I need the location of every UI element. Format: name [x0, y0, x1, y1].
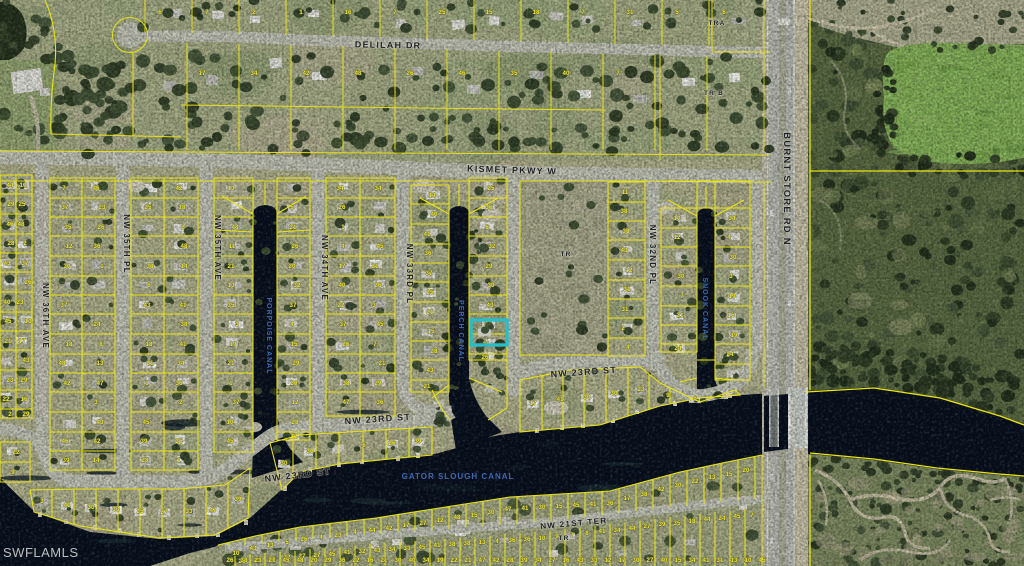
svg-text:16: 16 — [345, 9, 352, 16]
svg-text:19: 19 — [230, 341, 237, 348]
svg-text:19: 19 — [731, 332, 738, 339]
svg-text:GATOR SLOUGH CANAL: GATOR SLOUGH CANAL — [402, 472, 515, 481]
svg-text:29: 29 — [325, 557, 332, 564]
svg-text:1: 1 — [229, 380, 233, 387]
svg-text:10: 10 — [745, 557, 752, 564]
svg-text:29: 29 — [375, 380, 382, 387]
svg-text:48: 48 — [181, 243, 188, 250]
svg-text:21: 21 — [379, 360, 386, 367]
svg-text:34: 34 — [337, 185, 344, 192]
svg-text:32: 32 — [489, 243, 496, 250]
svg-text:27: 27 — [420, 520, 427, 527]
svg-text:47: 47 — [505, 506, 512, 513]
svg-text:35: 35 — [65, 224, 72, 231]
svg-text:46: 46 — [7, 221, 14, 228]
svg-text:TR: TR — [558, 535, 569, 542]
svg-text:13: 13 — [25, 318, 32, 325]
svg-text:42: 42 — [94, 438, 101, 445]
svg-text:30: 30 — [675, 482, 682, 489]
svg-text:4: 4 — [341, 243, 345, 250]
svg-text:30: 30 — [611, 390, 618, 397]
svg-text:6: 6 — [485, 224, 489, 231]
svg-text:2: 2 — [181, 224, 185, 231]
svg-text:45: 45 — [283, 557, 290, 564]
svg-text:13: 13 — [267, 542, 274, 549]
svg-text:17: 17 — [199, 70, 206, 77]
svg-text:15: 15 — [471, 512, 478, 519]
svg-text:23: 23 — [99, 204, 106, 211]
svg-text:24: 24 — [675, 345, 682, 352]
svg-text:13: 13 — [97, 360, 104, 367]
svg-text:20: 20 — [743, 467, 750, 474]
svg-text:45: 45 — [5, 318, 12, 325]
svg-text:33: 33 — [113, 506, 120, 513]
svg-text:1: 1 — [341, 224, 345, 231]
svg-text:38: 38 — [181, 321, 188, 328]
svg-text:39: 39 — [63, 457, 70, 464]
svg-text:34: 34 — [423, 557, 430, 564]
svg-text:3: 3 — [372, 302, 376, 309]
svg-text:2: 2 — [621, 325, 625, 332]
svg-text:35: 35 — [674, 520, 681, 527]
svg-text:4: 4 — [353, 529, 357, 536]
svg-text:15: 15 — [291, 341, 298, 348]
svg-text:15: 15 — [486, 9, 493, 16]
svg-text:34: 34 — [729, 215, 736, 222]
svg-text:25: 25 — [145, 204, 152, 211]
svg-text:15: 15 — [726, 471, 733, 478]
svg-text:30: 30 — [539, 504, 546, 511]
svg-text:18: 18 — [146, 341, 153, 348]
svg-text:16: 16 — [563, 557, 570, 564]
svg-text:46: 46 — [93, 185, 100, 192]
svg-text:6: 6 — [722, 9, 726, 16]
svg-text:36: 36 — [509, 537, 516, 544]
svg-text:39: 39 — [235, 496, 242, 503]
svg-text:10: 10 — [674, 215, 681, 222]
svg-text:22: 22 — [338, 302, 345, 309]
svg-text:37: 37 — [22, 260, 29, 267]
svg-text:27: 27 — [161, 509, 168, 516]
svg-text:18: 18 — [66, 341, 73, 348]
svg-text:28: 28 — [8, 240, 15, 247]
svg-text:1: 1 — [145, 380, 149, 387]
svg-text:7: 7 — [616, 70, 620, 77]
svg-text:40: 40 — [409, 557, 416, 564]
svg-text:16: 16 — [21, 396, 28, 403]
svg-text:44: 44 — [629, 525, 636, 532]
svg-text:3: 3 — [235, 321, 239, 328]
svg-text:29: 29 — [8, 201, 15, 208]
svg-text:33: 33 — [404, 545, 411, 552]
svg-text:38: 38 — [449, 541, 456, 548]
svg-text:24: 24 — [94, 321, 101, 328]
svg-text:23: 23 — [17, 299, 24, 306]
svg-text:34: 34 — [535, 557, 542, 564]
svg-text:28: 28 — [431, 348, 438, 355]
svg-text:42: 42 — [493, 557, 500, 564]
svg-text:2: 2 — [23, 240, 27, 247]
svg-text:26: 26 — [343, 341, 350, 348]
svg-text:3: 3 — [40, 498, 44, 505]
svg-text:26: 26 — [407, 70, 414, 77]
svg-text:20: 20 — [311, 557, 318, 564]
svg-text:10: 10 — [20, 182, 27, 189]
svg-text:13: 13 — [228, 282, 235, 289]
svg-text:39: 39 — [521, 557, 528, 564]
svg-text:33: 33 — [186, 508, 193, 515]
svg-text:43: 43 — [621, 247, 628, 254]
svg-text:8: 8 — [99, 341, 103, 348]
svg-text:TR B: TR B — [704, 90, 724, 97]
svg-text:38: 38 — [641, 491, 648, 498]
svg-text:45: 45 — [377, 321, 384, 328]
svg-text:30: 30 — [307, 448, 314, 455]
svg-text:18: 18 — [179, 204, 186, 211]
svg-text:42: 42 — [658, 486, 665, 493]
svg-text:21: 21 — [677, 312, 684, 319]
svg-text:38: 38 — [241, 557, 248, 564]
svg-text:39: 39 — [141, 438, 148, 445]
svg-text:40: 40 — [339, 282, 346, 289]
svg-text:21: 21 — [228, 263, 235, 270]
svg-text:12: 12 — [437, 517, 444, 524]
svg-text:16: 16 — [367, 557, 374, 564]
svg-text:9: 9 — [666, 392, 670, 399]
svg-text:19: 19 — [729, 293, 736, 300]
svg-text:41: 41 — [522, 505, 529, 512]
svg-text:7: 7 — [205, 9, 209, 16]
svg-text:39: 39 — [659, 521, 666, 528]
svg-text:34: 34 — [178, 360, 185, 367]
svg-text:41: 41 — [180, 341, 187, 348]
svg-text:41: 41 — [590, 501, 597, 508]
svg-text:NW 35TH PL: NW 35TH PL — [122, 214, 131, 274]
svg-text:36: 36 — [607, 500, 614, 507]
svg-text:7: 7 — [373, 341, 377, 348]
svg-text:38: 38 — [623, 228, 630, 235]
svg-text:17: 17 — [403, 522, 410, 529]
svg-text:45: 45 — [419, 544, 426, 551]
svg-text:PORPOISE CANAL: PORPOISE CANAL — [265, 297, 272, 374]
svg-text:43: 43 — [250, 545, 257, 552]
svg-text:45: 45 — [377, 243, 384, 250]
svg-text:4: 4 — [727, 234, 731, 241]
svg-text:13: 13 — [731, 557, 738, 564]
svg-text:40: 40 — [4, 299, 11, 306]
svg-text:8: 8 — [585, 530, 589, 537]
svg-text:30: 30 — [488, 509, 495, 516]
svg-text:41: 41 — [180, 302, 187, 309]
svg-text:4: 4 — [319, 534, 323, 541]
svg-text:42: 42 — [176, 185, 183, 192]
svg-text:34: 34 — [375, 185, 382, 192]
svg-text:26: 26 — [339, 204, 346, 211]
svg-text:28: 28 — [142, 457, 149, 464]
svg-text:48: 48 — [454, 514, 461, 521]
svg-text:37: 37 — [62, 204, 69, 211]
svg-text:5: 5 — [285, 539, 289, 546]
svg-text:28: 28 — [507, 557, 514, 564]
svg-text:21: 21 — [228, 360, 235, 367]
svg-text:22: 22 — [692, 478, 699, 485]
svg-text:NW 35TH AVE: NW 35TH AVE — [213, 215, 222, 281]
svg-text:14: 14 — [93, 457, 100, 464]
svg-text:26: 26 — [389, 440, 396, 447]
svg-text:30: 30 — [633, 557, 640, 564]
svg-text:17: 17 — [339, 263, 346, 270]
svg-text:7: 7 — [581, 9, 585, 16]
svg-text:12: 12 — [674, 234, 681, 241]
svg-text:14: 14 — [429, 192, 436, 199]
svg-text:40: 40 — [563, 70, 570, 77]
svg-text:6: 6 — [158, 9, 162, 16]
svg-text:13: 13 — [479, 539, 486, 546]
svg-text:42: 42 — [386, 525, 393, 532]
svg-text:21: 21 — [381, 557, 388, 564]
svg-text:45: 45 — [143, 419, 150, 426]
svg-text:26: 26 — [301, 536, 308, 543]
svg-text:43: 43 — [577, 557, 584, 564]
svg-text:43: 43 — [487, 302, 494, 309]
svg-text:27: 27 — [644, 523, 651, 530]
svg-text:42: 42 — [303, 70, 310, 77]
svg-text:4: 4 — [626, 344, 630, 351]
svg-text:30: 30 — [281, 460, 288, 467]
svg-text:19: 19 — [437, 557, 444, 564]
svg-text:31: 31 — [624, 286, 631, 293]
svg-text:45: 45 — [573, 502, 580, 509]
svg-text:30: 30 — [730, 254, 737, 261]
svg-text:43: 43 — [23, 357, 30, 364]
svg-text:35: 35 — [228, 302, 235, 309]
svg-text:1: 1 — [299, 9, 303, 16]
svg-text:35: 35 — [511, 70, 518, 77]
svg-text:37: 37 — [233, 399, 240, 406]
svg-text:36: 36 — [339, 557, 346, 564]
svg-text:29: 29 — [293, 360, 300, 367]
svg-text:36: 36 — [486, 204, 493, 211]
svg-text:12: 12 — [66, 243, 73, 250]
svg-text:23: 23 — [638, 386, 645, 393]
svg-text:48: 48 — [232, 224, 239, 231]
svg-text:26: 26 — [375, 282, 382, 289]
svg-text:6: 6 — [147, 282, 151, 289]
svg-text:25: 25 — [439, 9, 446, 16]
svg-text:1: 1 — [177, 457, 181, 464]
svg-text:34: 34 — [689, 557, 696, 564]
svg-text:30: 30 — [488, 282, 495, 289]
svg-text:1: 1 — [100, 263, 104, 270]
svg-text:23: 23 — [255, 557, 262, 564]
svg-text:6: 6 — [693, 395, 697, 402]
svg-text:26: 26 — [98, 224, 105, 231]
svg-text:38: 38 — [147, 263, 154, 270]
svg-text:34: 34 — [614, 527, 621, 534]
svg-text:47: 47 — [97, 380, 104, 387]
svg-text:31: 31 — [717, 557, 724, 564]
svg-text:31: 31 — [622, 306, 629, 313]
svg-text:25: 25 — [427, 289, 434, 296]
svg-text:43: 43 — [374, 547, 381, 554]
svg-text:25: 25 — [19, 201, 26, 208]
svg-text:4: 4 — [495, 538, 499, 545]
svg-text:41: 41 — [344, 549, 351, 556]
svg-text:12: 12 — [292, 399, 299, 406]
svg-text:27: 27 — [647, 557, 654, 564]
svg-text:TRA: TRA — [709, 20, 726, 27]
svg-text:38: 38 — [343, 380, 350, 387]
svg-text:32: 32 — [294, 282, 301, 289]
svg-text:22: 22 — [451, 557, 458, 564]
svg-text:4: 4 — [290, 321, 294, 328]
svg-text:20: 20 — [289, 263, 296, 270]
svg-text:21: 21 — [427, 309, 434, 316]
svg-text:40: 40 — [661, 557, 668, 564]
svg-text:38: 38 — [464, 540, 471, 547]
svg-text:10: 10 — [233, 550, 240, 557]
svg-text:46: 46 — [62, 438, 69, 445]
svg-text:30: 30 — [584, 394, 591, 401]
svg-text:NW 34TH AVE: NW 34TH AVE — [320, 235, 329, 301]
svg-text:12: 12 — [626, 267, 633, 274]
svg-text:20: 20 — [291, 380, 298, 387]
svg-text:17: 17 — [619, 557, 626, 564]
svg-text:40: 40 — [431, 211, 438, 218]
svg-text:6: 6 — [362, 442, 366, 449]
svg-text:7: 7 — [570, 532, 574, 539]
svg-text:17: 17 — [530, 400, 537, 407]
svg-text:29: 29 — [486, 263, 493, 270]
svg-text:43: 43 — [97, 419, 104, 426]
svg-text:44: 44 — [704, 516, 711, 523]
svg-text:DELILAH DR: DELILAH DR — [355, 39, 422, 50]
svg-text:3: 3 — [94, 399, 98, 406]
svg-text:43: 43 — [4, 260, 11, 267]
svg-text:37: 37 — [426, 270, 433, 277]
svg-text:3: 3 — [729, 273, 733, 280]
svg-text:41: 41 — [64, 502, 71, 509]
svg-text:29: 29 — [23, 411, 30, 418]
svg-text:36: 36 — [176, 380, 183, 387]
svg-text:TR: TR — [560, 251, 571, 258]
svg-text:41: 41 — [424, 231, 431, 238]
svg-text:NW 33RD PL: NW 33RD PL — [405, 244, 414, 304]
svg-text:22: 22 — [353, 557, 360, 564]
svg-text:48: 48 — [355, 70, 362, 77]
svg-text:12: 12 — [605, 557, 612, 564]
svg-text:15: 15 — [556, 503, 563, 510]
svg-text:11: 11 — [229, 243, 236, 250]
svg-text:36: 36 — [94, 243, 101, 250]
svg-text:26: 26 — [227, 557, 234, 564]
svg-text:2: 2 — [179, 399, 183, 406]
svg-text:27: 27 — [549, 557, 556, 564]
svg-text:26: 26 — [25, 279, 32, 286]
svg-text:17: 17 — [19, 338, 26, 345]
svg-text:11: 11 — [622, 189, 629, 196]
svg-text:23: 23 — [7, 377, 14, 384]
svg-text:41: 41 — [703, 557, 710, 564]
svg-text:7: 7 — [680, 293, 684, 300]
svg-text:26: 26 — [176, 438, 183, 445]
svg-text:34: 34 — [389, 546, 396, 553]
svg-text:23: 23 — [335, 532, 342, 539]
svg-text:PERCH CANAL: PERCH CANAL — [457, 300, 464, 362]
svg-text:10: 10 — [539, 535, 546, 542]
svg-text:7: 7 — [750, 512, 754, 519]
svg-text:22: 22 — [3, 396, 10, 403]
svg-text:41: 41 — [557, 396, 564, 403]
svg-text:30: 30 — [678, 273, 685, 280]
svg-text:48: 48 — [59, 360, 66, 367]
svg-text:37: 37 — [340, 321, 347, 328]
svg-text:42: 42 — [64, 380, 71, 387]
svg-text:21: 21 — [290, 224, 297, 231]
svg-text:2: 2 — [252, 9, 256, 16]
svg-text:36: 36 — [377, 399, 384, 406]
svg-text:47: 47 — [210, 507, 217, 514]
svg-text:31: 31 — [627, 9, 634, 16]
svg-text:18: 18 — [533, 9, 540, 16]
svg-text:7: 7 — [62, 185, 66, 192]
svg-text:43: 43 — [144, 302, 151, 309]
svg-text:47: 47 — [343, 399, 350, 406]
svg-text:43: 43 — [427, 367, 434, 374]
svg-text:28: 28 — [292, 419, 299, 426]
svg-text:30: 30 — [88, 504, 95, 511]
svg-text:46: 46 — [459, 70, 466, 77]
svg-text:45: 45 — [734, 513, 741, 520]
svg-text:13: 13 — [709, 474, 716, 481]
svg-text:22: 22 — [13, 449, 20, 456]
svg-text:7: 7 — [393, 9, 397, 16]
svg-text:36: 36 — [524, 536, 531, 543]
svg-text:32: 32 — [359, 548, 366, 555]
svg-text:39: 39 — [415, 438, 422, 445]
svg-text:NW 36TH AVE: NW 36TH AVE — [41, 283, 50, 349]
svg-text:36: 36 — [425, 250, 432, 257]
svg-text:45: 45 — [227, 438, 234, 445]
svg-text:33: 33 — [591, 557, 598, 564]
svg-text:41: 41 — [599, 528, 606, 535]
svg-text:18: 18 — [689, 518, 696, 525]
svg-text:44: 44 — [369, 527, 376, 534]
svg-text:BURNT STORE RD N: BURNT STORE RD N — [781, 132, 792, 246]
svg-text:48: 48 — [297, 557, 304, 564]
svg-text:21: 21 — [372, 263, 379, 270]
svg-text:48: 48 — [18, 221, 25, 228]
svg-text:21: 21 — [465, 557, 472, 564]
svg-text:5: 5 — [675, 9, 679, 16]
svg-text:10: 10 — [227, 419, 234, 426]
svg-text:41: 41 — [434, 542, 441, 549]
svg-text:16: 16 — [728, 312, 735, 319]
svg-text:26: 26 — [292, 243, 299, 250]
svg-text:24: 24 — [719, 515, 726, 522]
svg-text:17: 17 — [624, 495, 631, 502]
svg-text:29: 29 — [21, 377, 28, 384]
svg-text:14: 14 — [181, 263, 188, 270]
svg-text:NW 32ND PL: NW 32ND PL — [648, 225, 657, 285]
svg-text:21: 21 — [5, 338, 12, 345]
svg-text:24: 24 — [727, 351, 734, 358]
svg-text:25: 25 — [488, 185, 495, 192]
svg-text:37: 37 — [290, 302, 297, 309]
svg-text:25: 25 — [137, 508, 144, 515]
svg-text:47: 47 — [479, 557, 486, 564]
svg-text:21: 21 — [269, 557, 276, 564]
